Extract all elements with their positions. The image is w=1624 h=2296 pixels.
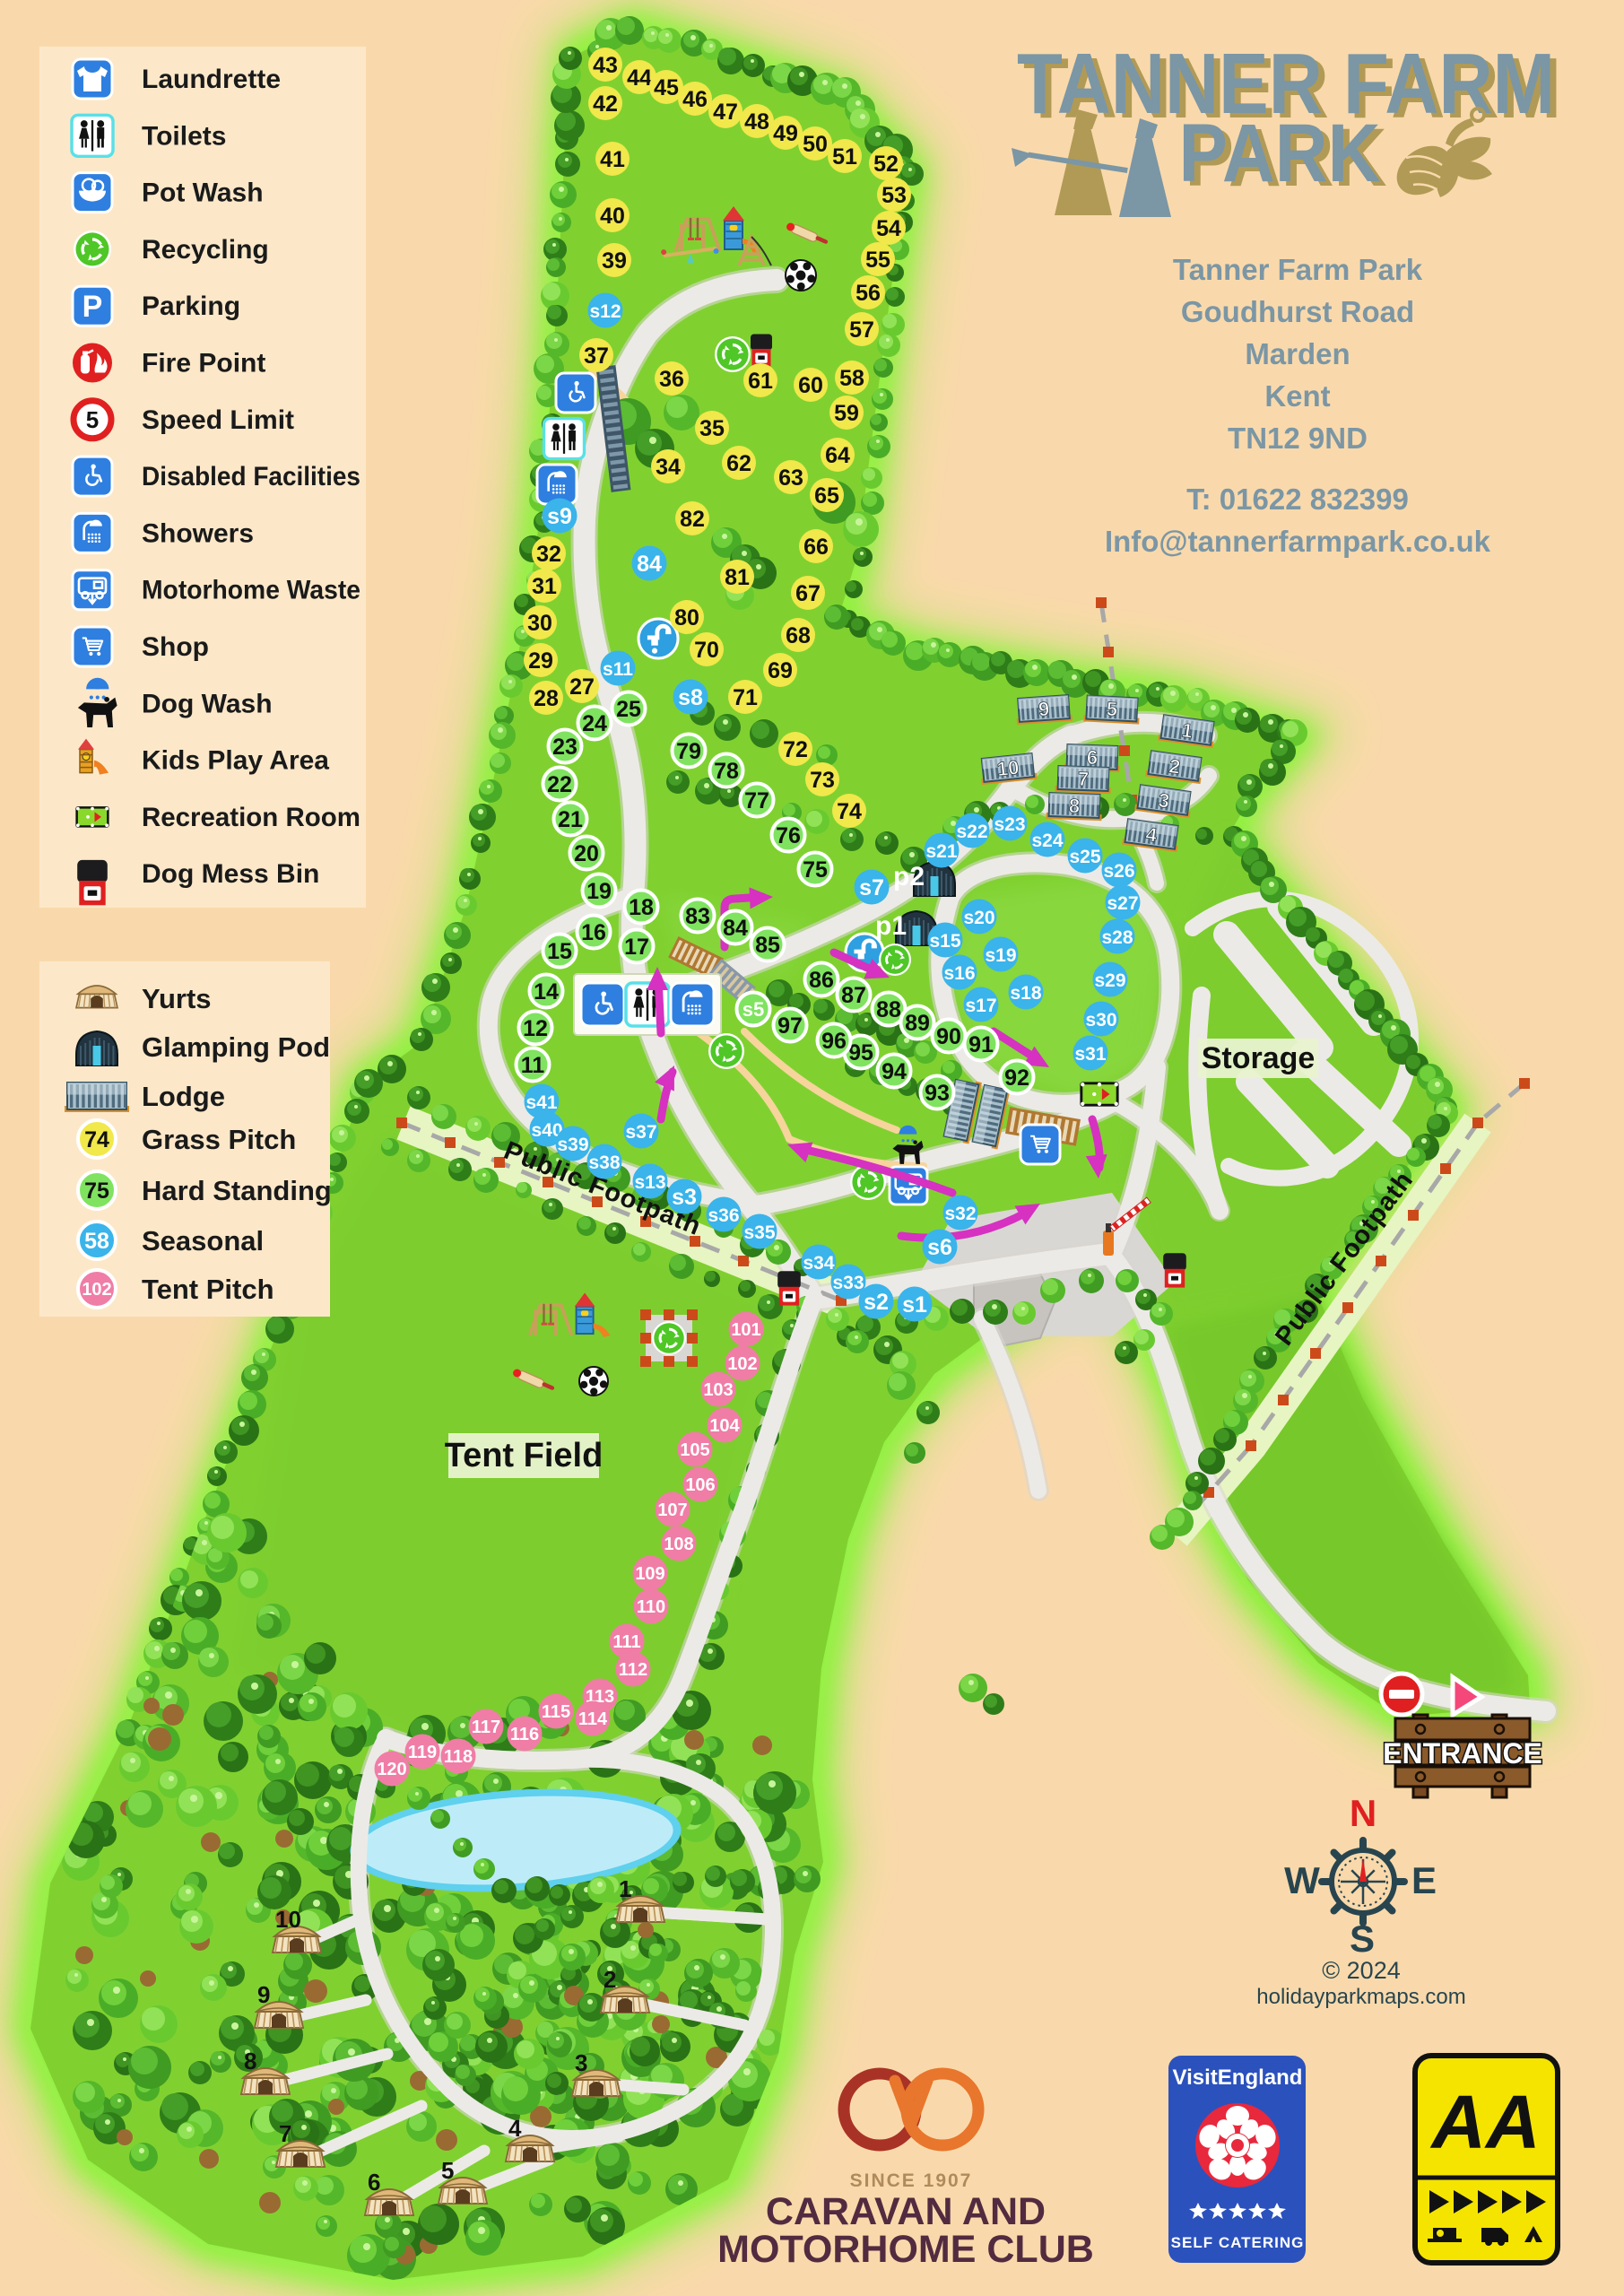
svg-text:T: 01622 832399: T: 01622 832399	[1186, 483, 1409, 516]
svg-text:74: 74	[84, 1127, 109, 1152]
svg-text:Lodge: Lodge	[142, 1081, 225, 1112]
svg-text:49: 49	[773, 121, 798, 146]
svg-text:20: 20	[574, 841, 599, 866]
svg-text:34: 34	[656, 455, 681, 480]
svg-text:s22: s22	[956, 822, 987, 842]
svg-text:Speed Limit: Speed Limit	[142, 405, 294, 435]
svg-text:88: 88	[876, 997, 901, 1022]
svg-text:72: 72	[783, 737, 808, 762]
svg-text:27: 27	[569, 674, 595, 700]
svg-text:91: 91	[968, 1032, 994, 1057]
svg-text:44: 44	[627, 65, 652, 91]
svg-text:35: 35	[699, 416, 725, 441]
svg-text:s25: s25	[1069, 847, 1100, 867]
svg-text:Kids Play Area: Kids Play Area	[142, 746, 329, 776]
svg-text:s26: s26	[1103, 861, 1134, 882]
svg-text:Tent Pitch: Tent Pitch	[142, 1274, 274, 1305]
svg-text:4: 4	[508, 2115, 522, 2142]
svg-text:39: 39	[602, 248, 627, 274]
svg-text:25: 25	[616, 697, 641, 722]
svg-text:VisitEngland: VisitEngland	[1173, 2066, 1303, 2090]
svg-text:P: P	[83, 290, 103, 324]
svg-text:89: 89	[905, 1011, 930, 1036]
svg-text:87: 87	[841, 983, 866, 1008]
svg-text:s11: s11	[603, 659, 633, 680]
svg-text:83: 83	[685, 904, 710, 929]
svg-text:E: E	[1411, 1859, 1437, 1901]
svg-text:s28: s28	[1101, 927, 1133, 948]
svg-text:11: 11	[521, 1053, 545, 1078]
svg-text:12: 12	[523, 1016, 548, 1041]
svg-text:102: 102	[727, 1354, 757, 1374]
svg-text:81: 81	[725, 565, 750, 590]
svg-text:92: 92	[1004, 1065, 1029, 1091]
svg-text:108: 108	[664, 1535, 693, 1554]
svg-text:s5: s5	[743, 998, 764, 1021]
svg-text:116: 116	[510, 1725, 539, 1744]
svg-text:1: 1	[619, 1875, 631, 1902]
svg-text:75: 75	[84, 1178, 109, 1204]
svg-text:58: 58	[84, 1229, 109, 1254]
svg-text:TN12 9ND: TN12 9ND	[1228, 422, 1368, 455]
svg-text:66: 66	[803, 535, 829, 560]
svg-text:7: 7	[1077, 768, 1089, 790]
svg-text:58: 58	[839, 366, 864, 391]
svg-text:s38: s38	[588, 1152, 620, 1173]
svg-text:78: 78	[714, 759, 739, 784]
svg-text:105: 105	[680, 1440, 709, 1460]
svg-text:s2: s2	[864, 1290, 889, 1315]
svg-text:6: 6	[368, 2169, 380, 2196]
svg-text:16: 16	[581, 920, 606, 945]
svg-text:Grass Pitch: Grass Pitch	[142, 1124, 296, 1155]
svg-text:103: 103	[703, 1380, 733, 1400]
svg-text:s35: s35	[743, 1222, 775, 1243]
svg-text:s6: s6	[927, 1235, 952, 1260]
svg-text:60: 60	[798, 373, 823, 398]
svg-text:15: 15	[547, 939, 572, 964]
svg-text:42: 42	[593, 91, 618, 117]
svg-text:101: 101	[731, 1320, 760, 1340]
svg-text:84: 84	[723, 916, 748, 941]
svg-text:s33: s33	[832, 1273, 864, 1293]
svg-text:Dog Mess Bin: Dog Mess Bin	[142, 859, 319, 889]
svg-text:Hard Standing: Hard Standing	[142, 1175, 332, 1206]
svg-text:32: 32	[536, 542, 561, 567]
svg-text:p2: p2	[893, 862, 925, 891]
svg-text:p1: p1	[875, 911, 907, 941]
svg-text:holidayparkmaps.com: holidayparkmaps.com	[1256, 1985, 1465, 2009]
svg-text:111: 111	[612, 1632, 640, 1652]
svg-text:Tanner Farm Park: Tanner Farm Park	[1173, 253, 1423, 286]
svg-text:104: 104	[709, 1416, 740, 1436]
svg-text:57: 57	[849, 317, 874, 343]
svg-text:Laundrette: Laundrette	[142, 65, 281, 94]
svg-text:120: 120	[377, 1760, 406, 1779]
svg-text:Kent: Kent	[1264, 379, 1330, 413]
svg-text:s9: s9	[547, 504, 572, 529]
svg-text:s1: s1	[902, 1292, 927, 1318]
svg-text:28: 28	[534, 686, 559, 711]
svg-text:Glamping Pod: Glamping Pod	[142, 1031, 330, 1063]
svg-text:19: 19	[586, 879, 612, 904]
svg-text:61: 61	[748, 369, 773, 394]
svg-text:110: 110	[637, 1597, 665, 1617]
svg-text:40: 40	[600, 204, 625, 229]
svg-text:45: 45	[654, 75, 679, 100]
svg-text:36: 36	[659, 367, 684, 392]
svg-text:29: 29	[528, 648, 553, 674]
svg-text:75: 75	[803, 857, 828, 883]
svg-text:ENTRANCE: ENTRANCE	[1383, 1737, 1542, 1770]
svg-text:s3: s3	[672, 1185, 697, 1210]
svg-text:CARAVAN AND: CARAVAN AND	[766, 2190, 1046, 2233]
svg-text:W: W	[1284, 1859, 1320, 1901]
svg-text:5: 5	[86, 406, 99, 433]
svg-text:s37: s37	[625, 1122, 656, 1143]
svg-text:70: 70	[694, 638, 719, 663]
svg-text:51: 51	[832, 144, 857, 170]
svg-text:6: 6	[1086, 746, 1098, 769]
svg-text:73: 73	[810, 768, 835, 793]
svg-text:54: 54	[876, 216, 901, 241]
svg-text:s15: s15	[929, 931, 960, 952]
svg-text:112: 112	[619, 1660, 647, 1680]
svg-text:94: 94	[881, 1059, 907, 1084]
svg-text:53: 53	[881, 183, 907, 208]
svg-text:s8: s8	[678, 685, 703, 710]
svg-text:86: 86	[809, 968, 834, 993]
svg-text:97: 97	[777, 1013, 803, 1039]
svg-text:95: 95	[848, 1040, 873, 1065]
svg-text:Seasonal: Seasonal	[142, 1225, 264, 1257]
svg-text:17: 17	[624, 935, 649, 960]
svg-text:8: 8	[244, 2048, 256, 2074]
svg-text:Motorhome Waste: Motorhome Waste	[142, 576, 360, 605]
svg-text:SINCE 1907: SINCE 1907	[850, 2170, 973, 2191]
svg-text:109: 109	[635, 1564, 664, 1584]
svg-text:s36: s36	[708, 1205, 739, 1226]
svg-text:55: 55	[865, 248, 890, 273]
svg-text:S: S	[1350, 1918, 1375, 1960]
svg-text:74: 74	[837, 799, 862, 824]
svg-text:s18: s18	[1010, 983, 1041, 1004]
svg-text:9: 9	[257, 1981, 270, 2008]
svg-text:50: 50	[803, 132, 828, 157]
svg-text:77: 77	[744, 788, 769, 813]
svg-text:59: 59	[834, 401, 859, 426]
svg-text:Recreation Room: Recreation Room	[142, 803, 360, 832]
svg-text:s17: s17	[965, 996, 996, 1016]
svg-text:22: 22	[547, 772, 572, 797]
svg-text:s31: s31	[1074, 1044, 1106, 1065]
svg-text:82: 82	[680, 507, 705, 532]
svg-text:Tent Field: Tent Field	[445, 1437, 604, 1474]
svg-text:18: 18	[629, 895, 654, 920]
svg-text:47: 47	[713, 100, 738, 125]
svg-text:s29: s29	[1094, 970, 1125, 991]
svg-text:118: 118	[444, 1747, 473, 1767]
svg-text:85: 85	[755, 933, 780, 958]
svg-text:Pot Wash: Pot Wash	[142, 178, 264, 208]
svg-text:37: 37	[584, 344, 609, 369]
svg-text:s41: s41	[525, 1092, 557, 1113]
svg-text:s16: s16	[943, 963, 975, 984]
svg-text:s19: s19	[985, 945, 1016, 966]
svg-text:107: 107	[657, 1500, 687, 1520]
svg-text:106: 106	[685, 1475, 715, 1495]
svg-text:s39: s39	[557, 1135, 588, 1155]
svg-text:84: 84	[637, 552, 662, 577]
svg-text:s32: s32	[944, 1204, 976, 1224]
svg-text:Fire Point: Fire Point	[142, 349, 265, 378]
svg-text:23: 23	[552, 735, 578, 760]
svg-text:56: 56	[855, 281, 881, 306]
svg-text:93: 93	[925, 1081, 950, 1106]
svg-text:© 2024: © 2024	[1322, 1957, 1400, 1984]
svg-text:Disabled Facilities: Disabled Facilities	[142, 462, 360, 491]
svg-text:SELF CATERING: SELF CATERING	[1171, 2234, 1305, 2251]
svg-text:Parking: Parking	[142, 291, 240, 321]
svg-text:5: 5	[1106, 698, 1118, 721]
svg-text:117: 117	[472, 1718, 500, 1737]
svg-text:115: 115	[542, 1702, 570, 1722]
svg-text:69: 69	[768, 658, 793, 683]
svg-text:Recycling: Recycling	[142, 235, 269, 265]
svg-text:s13: s13	[634, 1172, 665, 1193]
svg-text:114: 114	[578, 1709, 608, 1729]
svg-text:s7: s7	[859, 875, 884, 900]
svg-text:Dog Wash: Dog Wash	[142, 689, 273, 718]
svg-text:65: 65	[814, 483, 839, 509]
svg-text:s27: s27	[1107, 893, 1138, 914]
svg-text:30: 30	[527, 611, 552, 636]
svg-text:s12: s12	[589, 301, 621, 322]
svg-text:80: 80	[674, 605, 699, 631]
svg-text:Shop: Shop	[142, 632, 209, 662]
svg-text:Yurts: Yurts	[142, 983, 212, 1014]
svg-text:46: 46	[682, 87, 708, 112]
svg-text:s34: s34	[803, 1253, 834, 1274]
svg-text:79: 79	[676, 739, 701, 764]
svg-text:14: 14	[534, 979, 559, 1004]
svg-text:s23: s23	[994, 814, 1025, 835]
svg-text:Info@tannerfarmpark.co.uk: Info@tannerfarmpark.co.uk	[1105, 525, 1491, 558]
svg-text:48: 48	[744, 109, 769, 135]
svg-text:96: 96	[821, 1029, 847, 1054]
svg-text:MOTORHOME CLUB: MOTORHOME CLUB	[717, 2228, 1094, 2271]
svg-text:Marden: Marden	[1245, 337, 1350, 370]
svg-text:63: 63	[778, 465, 803, 491]
svg-text:7: 7	[279, 2120, 291, 2147]
svg-text:s30: s30	[1085, 1010, 1116, 1031]
svg-text:52: 52	[873, 152, 899, 177]
svg-text:10: 10	[996, 756, 1020, 780]
svg-text:76: 76	[776, 823, 801, 848]
svg-text:s24: s24	[1031, 831, 1063, 851]
svg-text:Toilets: Toilets	[142, 121, 226, 151]
svg-text:AA: AA	[1429, 2080, 1540, 2164]
svg-text:Goudhurst Road: Goudhurst Road	[1181, 295, 1414, 328]
svg-text:67: 67	[795, 581, 821, 606]
svg-text:9: 9	[1038, 698, 1050, 721]
svg-text:62: 62	[726, 451, 751, 476]
svg-text:Storage: Storage	[1202, 1041, 1316, 1075]
svg-text:Showers: Showers	[142, 518, 254, 548]
svg-text:119: 119	[408, 1743, 437, 1762]
svg-text:3: 3	[575, 2049, 587, 2076]
svg-text:41: 41	[600, 147, 625, 172]
svg-text:64: 64	[825, 443, 850, 468]
svg-text:5: 5	[441, 2157, 454, 2184]
svg-text:90: 90	[936, 1024, 961, 1049]
svg-text:8: 8	[1068, 795, 1080, 817]
svg-text:21: 21	[558, 807, 583, 832]
svg-text:24: 24	[582, 711, 607, 736]
svg-text:68: 68	[786, 623, 811, 648]
svg-text:s21: s21	[925, 841, 957, 862]
svg-text:2: 2	[604, 1966, 616, 1993]
svg-text:N: N	[1350, 1792, 1376, 1834]
svg-text:102: 102	[82, 1280, 111, 1300]
svg-text:71: 71	[733, 685, 758, 710]
svg-text:31: 31	[532, 574, 557, 599]
svg-text:43: 43	[593, 53, 618, 78]
svg-text:s20: s20	[963, 908, 994, 928]
svg-text:10: 10	[275, 1906, 301, 1933]
